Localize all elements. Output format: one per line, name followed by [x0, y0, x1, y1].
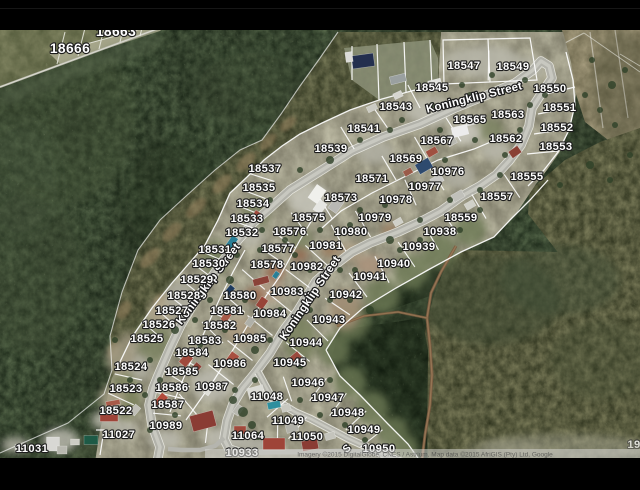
svg-text:10985: 10985 [233, 333, 266, 345]
svg-text:18578: 18578 [250, 259, 283, 271]
svg-text:18571: 18571 [355, 173, 388, 185]
svg-text:10980: 10980 [334, 226, 367, 238]
svg-text:18530: 18530 [192, 258, 225, 270]
svg-text:10981: 10981 [309, 240, 342, 252]
svg-text:18577: 18577 [261, 243, 294, 255]
svg-text:18567: 18567 [420, 135, 453, 147]
svg-text:18586: 18586 [155, 382, 188, 394]
svg-text:10976: 10976 [431, 166, 464, 178]
svg-text:10941: 10941 [353, 271, 386, 283]
svg-text:18573: 18573 [324, 192, 357, 204]
svg-text:18557: 18557 [480, 191, 513, 203]
svg-text:18583: 18583 [188, 335, 221, 347]
svg-text:18537: 18537 [248, 163, 281, 175]
svg-text:18533: 18533 [230, 213, 263, 225]
svg-text:18547: 18547 [447, 60, 480, 72]
svg-text:10982: 10982 [290, 261, 323, 273]
svg-text:18541: 18541 [347, 123, 380, 135]
svg-text:10939: 10939 [402, 241, 435, 253]
svg-text:18539: 18539 [314, 143, 347, 155]
svg-text:18569: 18569 [389, 153, 422, 165]
svg-text:10978: 10978 [379, 194, 412, 206]
svg-text:18575: 18575 [292, 212, 325, 224]
svg-text:10979: 10979 [358, 212, 391, 224]
svg-text:18562: 18562 [489, 133, 522, 145]
svg-text:10977: 10977 [408, 181, 441, 193]
svg-text:10946: 10946 [291, 377, 324, 389]
svg-text:18525: 18525 [130, 333, 163, 345]
svg-text:10948: 10948 [331, 407, 364, 419]
svg-text:18581: 18581 [210, 305, 243, 317]
svg-text:18584: 18584 [175, 347, 208, 359]
svg-text:10945: 10945 [273, 357, 306, 369]
svg-text:18528: 18528 [167, 290, 200, 302]
svg-text:18565: 18565 [453, 114, 486, 126]
svg-text:10938: 10938 [423, 226, 456, 238]
svg-text:10989: 10989 [149, 420, 182, 432]
svg-text:18551: 18551 [543, 102, 576, 114]
svg-text:18550: 18550 [533, 83, 566, 95]
svg-text:18580: 18580 [223, 290, 256, 302]
svg-text:18559: 18559 [444, 212, 477, 224]
svg-text:10949: 10949 [347, 424, 380, 436]
svg-text:11027: 11027 [103, 429, 136, 441]
svg-text:11064: 11064 [232, 430, 265, 442]
svg-text:18552: 18552 [540, 122, 573, 134]
svg-text:10984: 10984 [253, 308, 286, 320]
svg-text:10942: 10942 [329, 289, 362, 301]
svg-text:10983.: 10983. [271, 286, 308, 298]
svg-text:18523: 18523 [109, 383, 142, 395]
svg-text:18529: 18529 [180, 274, 213, 286]
svg-text:18553: 18553 [539, 141, 572, 153]
svg-text:18549: 18549 [496, 61, 529, 73]
svg-text:10940: 10940 [377, 258, 410, 270]
svg-text:10944: 10944 [289, 337, 322, 349]
svg-text:10986: 10986 [213, 358, 246, 370]
svg-text:18666: 18666 [50, 41, 90, 56]
svg-text:11031: 11031 [16, 443, 49, 455]
svg-text:18527: 18527 [155, 305, 188, 317]
svg-text:11048: 11048 [251, 391, 284, 403]
svg-text:11049: 11049 [272, 415, 305, 427]
svg-text:10987: 10987 [195, 381, 228, 393]
svg-text:18534: 18534 [236, 198, 269, 210]
svg-text:18531: 18531 [198, 244, 231, 256]
svg-text:18526: 18526 [142, 319, 175, 331]
svg-text:18563: 18563 [491, 109, 524, 121]
svg-text:18545: 18545 [415, 82, 448, 94]
svg-text:18524: 18524 [114, 361, 147, 373]
svg-text:10943: 10943 [312, 314, 345, 326]
svg-text:10947: 10947 [311, 392, 344, 404]
svg-text:18532: 18532 [225, 227, 258, 239]
svg-text:18582: 18582 [203, 320, 236, 332]
svg-text:18535: 18535 [242, 182, 275, 194]
svg-text:11050: 11050 [291, 431, 324, 443]
svg-text:18522: 18522 [99, 405, 132, 417]
svg-text:18555: 18555 [510, 171, 543, 183]
svg-text:Imagery ©2015 DigitalGlobe, CN: Imagery ©2015 DigitalGlobe, CNES / Astri… [297, 451, 553, 459]
svg-text:18543: 18543 [379, 101, 412, 113]
svg-text:18576: 18576 [273, 226, 306, 238]
svg-text:18587: 18587 [151, 399, 184, 411]
svg-text:18585: 18585 [165, 366, 198, 378]
